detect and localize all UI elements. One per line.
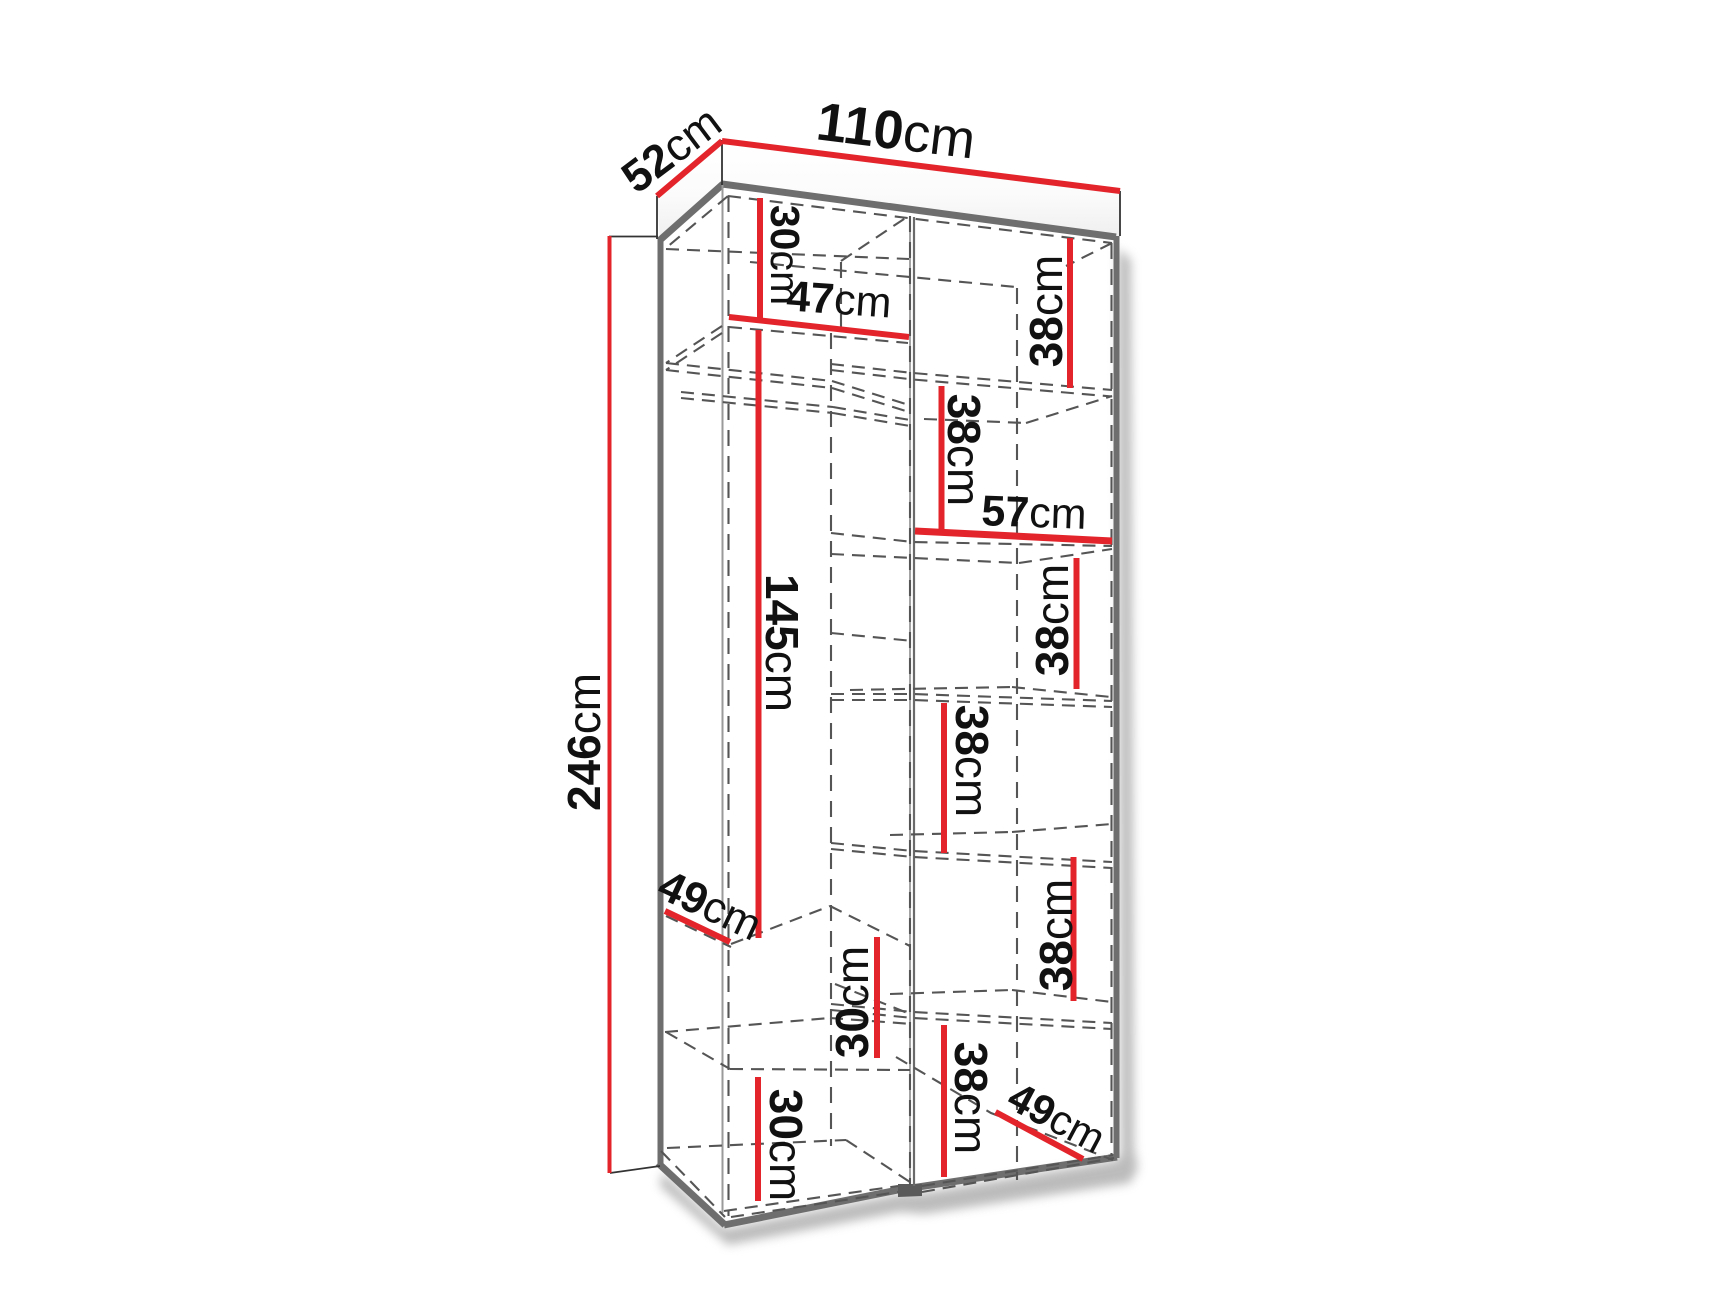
svg-text:38cm: 38cm <box>946 705 998 818</box>
svg-text:30cm: 30cm <box>760 1089 812 1202</box>
svg-text:38cm: 38cm <box>1026 564 1078 677</box>
svg-text:145cm: 145cm <box>756 574 808 712</box>
svg-text:57cm: 57cm <box>981 487 1088 539</box>
svg-text:38cm: 38cm <box>1020 255 1072 368</box>
svg-text:38cm: 38cm <box>1030 879 1082 992</box>
svg-text:38cm: 38cm <box>945 1042 997 1155</box>
svg-text:30cm: 30cm <box>826 946 878 1059</box>
svg-text:246cm: 246cm <box>558 673 610 811</box>
svg-text:47cm: 47cm <box>785 272 893 327</box>
